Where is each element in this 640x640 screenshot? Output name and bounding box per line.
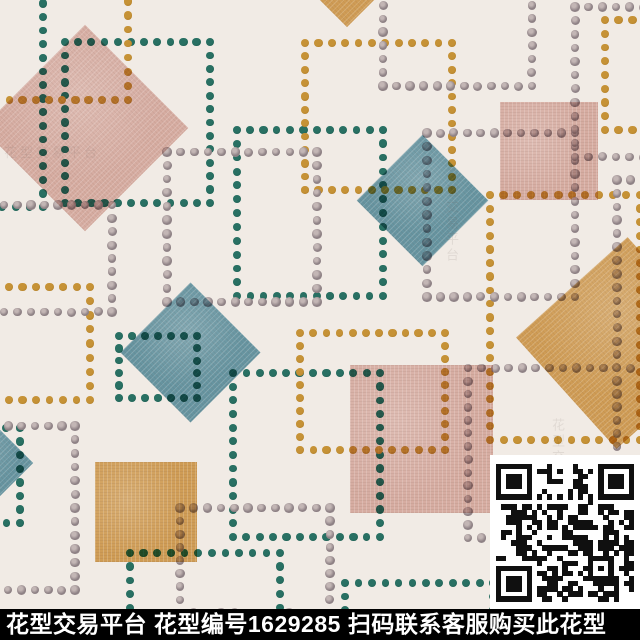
teal-dot bbox=[39, 122, 47, 130]
teal-dot bbox=[296, 533, 304, 541]
teal-dot bbox=[282, 533, 291, 542]
qr-module bbox=[573, 550, 578, 555]
gold-dot bbox=[636, 409, 640, 417]
silver-dot bbox=[570, 265, 579, 274]
silver-dot bbox=[244, 298, 253, 307]
teal-dot bbox=[194, 549, 202, 557]
gold-dot bbox=[486, 354, 494, 362]
gold-dot bbox=[486, 245, 494, 253]
silver-dot bbox=[612, 215, 622, 225]
silver-dot bbox=[571, 30, 580, 39]
silver-dot bbox=[531, 364, 540, 373]
silver-dot bbox=[379, 1, 388, 10]
teal-dot bbox=[39, 176, 48, 185]
gold-dot bbox=[46, 396, 54, 404]
teal-dot bbox=[229, 465, 237, 473]
silver-dot bbox=[460, 82, 469, 91]
gold-dot bbox=[341, 39, 350, 48]
silver-dot bbox=[528, 41, 537, 50]
teal-dot bbox=[16, 505, 25, 514]
caption-bar: 花型交易平台 花型编号1629285 扫码联系客服购买此花型 bbox=[0, 609, 640, 640]
teal-dot bbox=[126, 577, 134, 585]
teal-dot bbox=[154, 394, 161, 401]
silver-dot bbox=[379, 55, 388, 64]
gold-dot bbox=[368, 186, 376, 194]
teal-dot bbox=[61, 132, 69, 140]
gold-dot bbox=[601, 112, 609, 120]
gold-dot bbox=[86, 368, 94, 376]
silver-dot bbox=[299, 147, 308, 156]
silver-dot bbox=[504, 364, 513, 373]
qr-module bbox=[516, 586, 521, 591]
qr-module bbox=[516, 484, 521, 489]
teal-dot bbox=[355, 579, 362, 586]
silver-dot bbox=[313, 243, 322, 252]
silver-dot bbox=[204, 148, 212, 156]
gold-dot bbox=[388, 446, 396, 454]
silver-dot bbox=[162, 229, 172, 239]
gold-dot bbox=[513, 436, 522, 445]
gold-dot bbox=[381, 186, 390, 195]
qr-module bbox=[501, 556, 506, 561]
silver-dot bbox=[312, 229, 322, 239]
silver-dot bbox=[598, 2, 608, 12]
silver-dot bbox=[163, 202, 172, 211]
gold-dot bbox=[368, 39, 376, 47]
gold-dot bbox=[395, 39, 403, 47]
gold-dot bbox=[5, 283, 13, 291]
gold-dot bbox=[636, 232, 640, 241]
gold-dot bbox=[541, 436, 549, 444]
teal-dot bbox=[193, 357, 202, 366]
gold-dot bbox=[486, 313, 494, 321]
silver-dot bbox=[528, 55, 537, 64]
silver-dot bbox=[490, 128, 499, 137]
silver-dot bbox=[612, 376, 622, 386]
gold-dot bbox=[301, 79, 310, 88]
teal-dot bbox=[256, 533, 264, 541]
gold-dot bbox=[84, 96, 93, 105]
teal-dot bbox=[363, 533, 371, 541]
silver-dot bbox=[570, 238, 580, 248]
silver-dot bbox=[203, 297, 213, 307]
teal-dot bbox=[141, 332, 149, 340]
silver-dot bbox=[477, 533, 486, 542]
silver-dot bbox=[503, 129, 512, 138]
teal-dot bbox=[435, 579, 444, 588]
gold-dot bbox=[636, 354, 640, 362]
gold-dot bbox=[59, 283, 66, 290]
gold-dot bbox=[296, 368, 304, 376]
gold-dot bbox=[86, 396, 94, 404]
silver-dot bbox=[190, 148, 199, 157]
teal-dot bbox=[126, 562, 135, 571]
silver-dot bbox=[612, 153, 620, 161]
gold-dot bbox=[309, 329, 318, 338]
silver-dot bbox=[423, 183, 432, 192]
gold-dot bbox=[636, 423, 640, 431]
gold-dot bbox=[421, 39, 429, 47]
gold-dot bbox=[301, 92, 309, 100]
gold-dot bbox=[59, 396, 67, 404]
silver-dot bbox=[613, 323, 622, 332]
qr-module bbox=[557, 479, 562, 484]
silver-dot bbox=[162, 188, 171, 197]
gold-dot bbox=[601, 71, 609, 79]
teal-dot bbox=[206, 172, 214, 180]
silver-dot bbox=[313, 175, 322, 184]
gold-dot bbox=[301, 186, 308, 193]
gold-dot bbox=[441, 355, 449, 363]
gold-dot bbox=[527, 191, 535, 199]
silver-dot bbox=[517, 129, 525, 137]
gold-dot bbox=[301, 173, 309, 181]
silver-dot bbox=[286, 148, 294, 156]
teal-dot bbox=[206, 199, 214, 207]
gold-dot bbox=[301, 119, 309, 127]
qr-module bbox=[629, 494, 634, 499]
silver-dot bbox=[378, 27, 388, 37]
gold-dot bbox=[124, 82, 132, 90]
silver-dot bbox=[545, 364, 554, 373]
teal-dot bbox=[16, 437, 24, 445]
teal-dot bbox=[39, 81, 47, 89]
silver-dot bbox=[70, 476, 79, 485]
qr-module bbox=[537, 494, 542, 499]
silver-dot bbox=[108, 201, 117, 210]
teal-dot bbox=[246, 126, 254, 134]
teal-dot bbox=[233, 251, 241, 259]
gold-dot bbox=[86, 283, 94, 291]
gold-dot bbox=[124, 0, 133, 6]
teal-dot bbox=[376, 397, 383, 404]
silver-dot bbox=[4, 586, 12, 594]
silver-dot bbox=[464, 534, 472, 542]
teal-dot bbox=[326, 292, 333, 299]
silver-dot bbox=[107, 214, 116, 223]
teal-dot bbox=[376, 369, 384, 377]
silver-dot bbox=[163, 161, 172, 170]
silver-dot bbox=[71, 490, 80, 499]
gold-dot bbox=[441, 394, 449, 402]
gold-dot bbox=[636, 286, 640, 294]
gold-dot bbox=[355, 186, 362, 193]
gold-dot bbox=[448, 52, 456, 60]
teal-dot bbox=[180, 332, 188, 340]
silver-dot bbox=[612, 283, 621, 292]
teal-dot bbox=[229, 533, 238, 542]
teal-dot bbox=[229, 369, 237, 377]
silver-dot bbox=[464, 403, 473, 412]
silver-dot bbox=[190, 298, 199, 307]
silver-dot bbox=[108, 254, 117, 263]
silver-dot bbox=[162, 147, 171, 156]
teal-dot bbox=[61, 172, 69, 180]
gold-dot bbox=[328, 186, 336, 194]
teal-dot bbox=[141, 394, 148, 401]
silver-dot bbox=[107, 281, 116, 290]
gold-dot bbox=[296, 433, 304, 441]
teal-dot bbox=[376, 519, 384, 527]
qr-module bbox=[542, 556, 547, 561]
teal-dot bbox=[235, 549, 242, 556]
silver-dot bbox=[557, 128, 566, 137]
qr-module bbox=[527, 494, 532, 499]
gold-dot bbox=[301, 52, 309, 60]
gold-dot bbox=[336, 329, 344, 337]
gold-dot bbox=[500, 436, 508, 444]
silver-dot bbox=[433, 81, 442, 90]
gold-dot bbox=[595, 436, 603, 444]
silver-dot bbox=[312, 161, 321, 170]
gold-dot bbox=[636, 436, 640, 444]
gold-dot bbox=[636, 381, 640, 390]
gold-dot bbox=[448, 106, 456, 114]
silver-dot bbox=[464, 429, 472, 437]
gold-dot bbox=[362, 446, 370, 454]
silver-dot bbox=[312, 284, 321, 293]
gold-dot bbox=[513, 191, 521, 199]
silver-dot bbox=[70, 558, 80, 568]
silver-dot bbox=[557, 293, 566, 302]
teal-dot bbox=[179, 38, 188, 47]
silver-dot bbox=[0, 201, 8, 210]
silver-dot bbox=[570, 98, 579, 107]
gold-dot bbox=[541, 191, 549, 199]
qr-module bbox=[506, 530, 511, 535]
silver-dot bbox=[463, 292, 472, 301]
teal-dot bbox=[376, 410, 385, 419]
qr-module bbox=[557, 469, 562, 474]
silver-dot bbox=[613, 429, 622, 438]
teal-dot bbox=[379, 237, 387, 245]
teal-dot bbox=[222, 549, 230, 557]
gold-dot bbox=[499, 191, 508, 200]
teal-dot bbox=[229, 410, 237, 418]
qr-module bbox=[552, 525, 557, 530]
gold-dot bbox=[86, 297, 94, 305]
gold-dot bbox=[601, 57, 609, 65]
silver-dot bbox=[528, 82, 536, 90]
silver-dot bbox=[313, 257, 322, 266]
gold-dot bbox=[314, 39, 322, 47]
gold-dot bbox=[45, 96, 52, 103]
silver-dot bbox=[464, 364, 472, 372]
gold-dot bbox=[435, 39, 443, 47]
silver-dot bbox=[613, 203, 622, 212]
gold-dot bbox=[428, 446, 436, 454]
qr-module bbox=[562, 504, 567, 509]
teal-dot bbox=[341, 579, 348, 586]
gold-dot bbox=[448, 66, 456, 74]
teal-dot bbox=[61, 105, 70, 114]
gold-dot bbox=[355, 39, 362, 46]
gold-dot bbox=[124, 68, 132, 76]
gold-dot bbox=[636, 300, 640, 308]
gold-dot bbox=[486, 436, 494, 444]
gold-dot bbox=[486, 272, 495, 281]
silver-dot bbox=[299, 297, 308, 306]
silver-dot bbox=[571, 252, 580, 261]
silver-dot bbox=[612, 3, 621, 12]
teal-dot bbox=[233, 237, 241, 245]
gold-dot bbox=[441, 433, 449, 441]
teal-dot bbox=[273, 126, 280, 133]
teal-dot bbox=[336, 369, 344, 377]
silver-dot bbox=[70, 585, 80, 595]
teal-dot bbox=[192, 38, 201, 47]
silver-dot bbox=[203, 503, 213, 513]
qr-module bbox=[578, 494, 583, 499]
silver-dot bbox=[13, 308, 21, 316]
silver-dot bbox=[71, 449, 80, 458]
teal-dot bbox=[128, 394, 136, 402]
qr-module bbox=[588, 499, 593, 504]
silver-dot bbox=[571, 16, 580, 25]
silver-dot bbox=[71, 463, 79, 471]
gold-dot bbox=[301, 133, 309, 141]
gold-dot bbox=[73, 283, 81, 291]
gold-dot bbox=[73, 396, 81, 404]
silver-dot bbox=[81, 201, 90, 210]
silver-dot bbox=[312, 270, 322, 280]
teal-dot bbox=[313, 126, 321, 134]
teal-dot bbox=[167, 38, 175, 46]
teal-dot bbox=[229, 451, 237, 459]
silver-dot bbox=[54, 308, 62, 316]
silver-dot bbox=[175, 569, 185, 579]
teal-dot bbox=[206, 105, 213, 112]
caption-text: 花型交易平台 花型编号1629285 扫码联系客服购买此花型 bbox=[0, 609, 606, 640]
teal-dot bbox=[379, 139, 388, 148]
teal-dot bbox=[336, 533, 345, 542]
teal-dot bbox=[229, 396, 237, 404]
teal-dot bbox=[61, 186, 69, 194]
silver-dot bbox=[419, 81, 428, 90]
silver-dot bbox=[176, 517, 185, 526]
silver-dot bbox=[70, 531, 80, 541]
silver-dot bbox=[449, 292, 459, 302]
gold-dot bbox=[124, 96, 132, 104]
teal-dot bbox=[379, 278, 387, 286]
teal-dot bbox=[61, 52, 69, 60]
gold-dot bbox=[486, 232, 494, 240]
silver-dot bbox=[514, 82, 523, 91]
teal-dot bbox=[263, 549, 271, 557]
teal-dot bbox=[39, 189, 47, 197]
qr-module bbox=[629, 586, 634, 591]
teal-dot bbox=[16, 478, 25, 487]
gold-dot bbox=[486, 205, 494, 213]
silver-dot bbox=[325, 556, 335, 566]
gold-dot bbox=[71, 96, 80, 105]
gold-dot bbox=[434, 186, 442, 194]
teal-dot bbox=[379, 292, 388, 301]
silver-dot bbox=[571, 44, 580, 53]
silver-dot bbox=[176, 582, 185, 591]
teal-dot bbox=[376, 437, 384, 445]
gold-dot bbox=[581, 191, 589, 199]
silver-dot bbox=[17, 422, 25, 430]
silver-dot bbox=[284, 503, 294, 513]
gold-dot bbox=[636, 341, 640, 349]
teal-dot bbox=[126, 549, 134, 557]
silver-dot bbox=[476, 292, 485, 301]
silver-dot bbox=[612, 242, 622, 252]
teal-dot bbox=[376, 464, 385, 473]
silver-dot bbox=[612, 389, 622, 399]
silver-dot bbox=[613, 416, 622, 425]
silver-dot bbox=[176, 556, 185, 565]
silver-dot bbox=[530, 293, 539, 302]
silver-dot bbox=[518, 363, 527, 372]
gold-dot bbox=[428, 329, 436, 337]
gold-dot bbox=[601, 126, 609, 134]
gold-dot bbox=[636, 218, 640, 226]
teal-dot bbox=[16, 465, 24, 473]
gold-dot bbox=[408, 39, 416, 47]
teal-dot bbox=[193, 332, 201, 340]
qr-module bbox=[614, 596, 619, 601]
gold-dot bbox=[486, 422, 494, 430]
silver-dot bbox=[571, 211, 579, 219]
silver-dot bbox=[528, 14, 537, 23]
teal-dot bbox=[229, 383, 237, 391]
silver-dot bbox=[405, 81, 415, 91]
gold-dot bbox=[636, 246, 640, 253]
teal-dot bbox=[167, 549, 174, 556]
gold-dot bbox=[622, 191, 630, 199]
teal-dot bbox=[229, 519, 237, 527]
teal-dot bbox=[39, 136, 46, 143]
silver-dot bbox=[0, 308, 8, 317]
teal-dot bbox=[154, 332, 162, 340]
gold-dot bbox=[601, 98, 609, 106]
qr-module bbox=[629, 550, 634, 555]
silver-dot bbox=[613, 442, 622, 451]
teal-dot bbox=[115, 344, 124, 353]
gold-dot bbox=[296, 355, 304, 363]
teal-dot bbox=[382, 579, 389, 586]
teal-dot bbox=[206, 159, 214, 167]
teal-dot bbox=[379, 209, 387, 217]
teal-dot bbox=[115, 394, 123, 402]
teal-dot bbox=[114, 38, 122, 46]
gold-dot bbox=[601, 85, 609, 93]
silver-dot bbox=[313, 189, 322, 198]
qr-code bbox=[490, 455, 640, 610]
silver-dot bbox=[570, 2, 580, 12]
silver-dot bbox=[464, 442, 472, 450]
pattern-preview-screenshot: 花型交易平台花型交易平台花型交易平台 花型交易平台 花型编号1629285 扫码… bbox=[0, 0, 640, 640]
teal-dot bbox=[339, 292, 347, 300]
silver-dot bbox=[422, 197, 431, 206]
teal-dot bbox=[39, 108, 46, 115]
silver-dot bbox=[423, 224, 432, 233]
qr-module bbox=[557, 494, 562, 499]
silver-dot bbox=[243, 503, 253, 513]
gold-dot bbox=[408, 186, 415, 193]
gold-dot bbox=[636, 314, 640, 321]
teal-dot bbox=[193, 344, 201, 352]
teal-dot bbox=[229, 492, 237, 500]
silver-dot bbox=[464, 416, 473, 425]
silver-dot bbox=[379, 15, 388, 24]
silver-dot bbox=[570, 57, 580, 67]
silver-dot bbox=[325, 503, 335, 513]
silver-dot bbox=[44, 586, 53, 595]
teal-dot bbox=[39, 0, 47, 8]
